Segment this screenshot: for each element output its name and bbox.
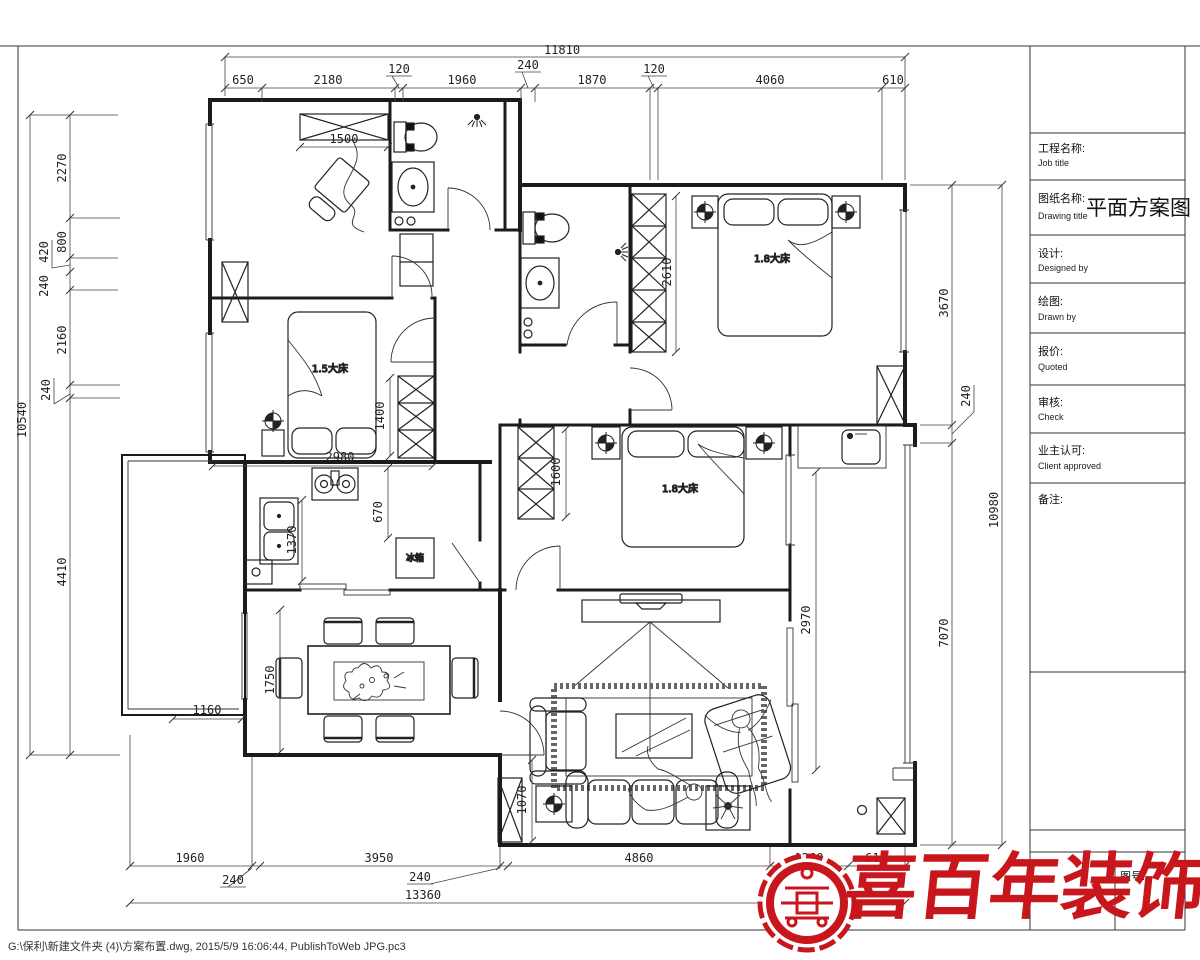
- drawing-frame: [0, 46, 1200, 930]
- dim-bottom-2: 3950: [365, 851, 394, 865]
- tb-row-job-cn: 工程名称:: [1038, 140, 1085, 156]
- dim-top-2: 120: [388, 62, 410, 76]
- living-room: [530, 594, 797, 830]
- dim-bottom-0: 1960: [176, 851, 205, 865]
- logo-text: 喜百年装饰: [841, 852, 1199, 924]
- tb-row-check-en: Check: [1038, 412, 1064, 422]
- dim-bottom-1: 240: [222, 873, 244, 887]
- sofa: [566, 772, 738, 828]
- dim-balcony-right: 2970: [799, 606, 813, 635]
- dimensions-interior: 1500 2610 1400 2980 1600 1370 670 1750 1…: [169, 132, 820, 845]
- dim-left-0: 2270: [55, 154, 69, 183]
- dimensions-right: 3670 240 7070 10980: [910, 181, 1006, 849]
- dim-left-overall: 10540: [15, 402, 29, 438]
- bathroom-1: [392, 115, 486, 226]
- tb-row-design-en: Designed by: [1038, 263, 1088, 273]
- dimensions-top: 11810 650 2180 120 1960 240 1870 120 406…: [221, 43, 909, 180]
- dim-bed3-width: 2980: [326, 450, 355, 464]
- dim-living-side: 1070: [515, 786, 529, 815]
- dim-left-2: 420: [37, 241, 51, 263]
- room-label-bed-second: 1.8大床: [662, 482, 698, 495]
- dim-bottom-3: 240: [409, 870, 431, 884]
- bedroom-third: 1.5大床: [262, 312, 434, 458]
- fridge-label: 冰箱: [406, 552, 424, 564]
- person-figure-2: [628, 746, 702, 810]
- dim-left-1: 800: [55, 231, 69, 253]
- footer-file-path: G:\保利\新建文件夹 (4)\方案布置.dwg, 2015/5/9 16:06…: [8, 938, 406, 954]
- dim-top-5: 1870: [578, 73, 607, 87]
- tb-row-drawn-cn: 绘图:: [1038, 293, 1063, 309]
- dim-top-6: 120: [643, 62, 665, 76]
- tb-row-drawing-en: Drawing title: [1038, 211, 1088, 221]
- dim-left-3: 240: [37, 275, 51, 297]
- dim-kitchen-col: 670: [371, 501, 385, 523]
- tb-row-quoted-en: Quoted: [1038, 362, 1068, 372]
- dim-top-7: 4060: [756, 73, 785, 87]
- dim-right-0: 3670: [937, 289, 951, 318]
- dim-left-5: 240: [39, 379, 53, 401]
- tb-row-design-cn: 设计:: [1038, 245, 1063, 261]
- dim-top-0: 650: [232, 73, 254, 87]
- tb-row-notes-cn: 备注:: [1038, 491, 1063, 507]
- dim-bed1-wardrobe: 2610: [660, 258, 674, 287]
- room-label-bed-third: 1.5大床: [312, 362, 348, 375]
- logo-emblem: [760, 856, 854, 950]
- dim-top-1: 2180: [314, 73, 343, 87]
- dim-top-overall: 11810: [544, 43, 580, 57]
- dim-study-wardrobe: 1500: [330, 132, 359, 146]
- armchair: [530, 698, 586, 784]
- tb-row-drawn-en: Drawn by: [1038, 312, 1076, 322]
- drawing-title: 平面方案图: [1086, 192, 1191, 222]
- dim-left-4: 2160: [55, 326, 69, 355]
- dim-right-1: 240: [959, 385, 973, 407]
- dim-right-overall: 10980: [987, 492, 1001, 528]
- dim-left-6: 4410: [55, 558, 69, 587]
- desk-chair: [302, 157, 370, 227]
- dim-kitchen-depth: 1370: [285, 526, 299, 555]
- balcony-right: [798, 426, 886, 468]
- dim-top-4: 240: [517, 58, 539, 72]
- tb-row-job-en: Job title: [1038, 158, 1069, 168]
- tb-row-client-cn: 业主认可:: [1038, 442, 1085, 458]
- bathroom-2: [521, 212, 628, 338]
- columns: [222, 234, 905, 842]
- dim-top-8: 610: [882, 73, 904, 87]
- dim-right-2: 7070: [937, 619, 951, 648]
- dim-bottom-overall: 13360: [405, 888, 441, 902]
- dim-dining-height: 1750: [263, 666, 277, 695]
- kitchen: 冰箱: [260, 468, 434, 578]
- tb-row-drawing-cn: 图纸名称:: [1038, 190, 1085, 206]
- dining-room: [276, 618, 478, 742]
- dim-top-3: 1960: [448, 73, 477, 87]
- dimensions-left: 10540 2270 800 420 240 2160 240 4410: [15, 111, 120, 759]
- floorplan-canvas: 1.8大床 1.8大床 1.5大床 冰箱: [0, 0, 1200, 960]
- dim-bed3-wardrobe: 1400: [373, 402, 387, 431]
- table-plant: [344, 664, 406, 701]
- tb-row-check-cn: 审核:: [1038, 394, 1063, 410]
- tb-row-quoted-cn: 报价:: [1038, 343, 1063, 359]
- dim-bed2-wardrobe: 1600: [549, 458, 563, 487]
- cad-floorplan-page: 1.8大床 1.8大床 1.5大床 冰箱: [0, 0, 1200, 960]
- tv: [620, 594, 682, 603]
- dim-bottom-4: 4860: [625, 851, 654, 865]
- dim-balcony-left: 1160: [193, 703, 222, 717]
- tb-row-client-en: Client approved: [1038, 461, 1101, 471]
- room-label-bed-master: 1.8大床: [754, 252, 790, 265]
